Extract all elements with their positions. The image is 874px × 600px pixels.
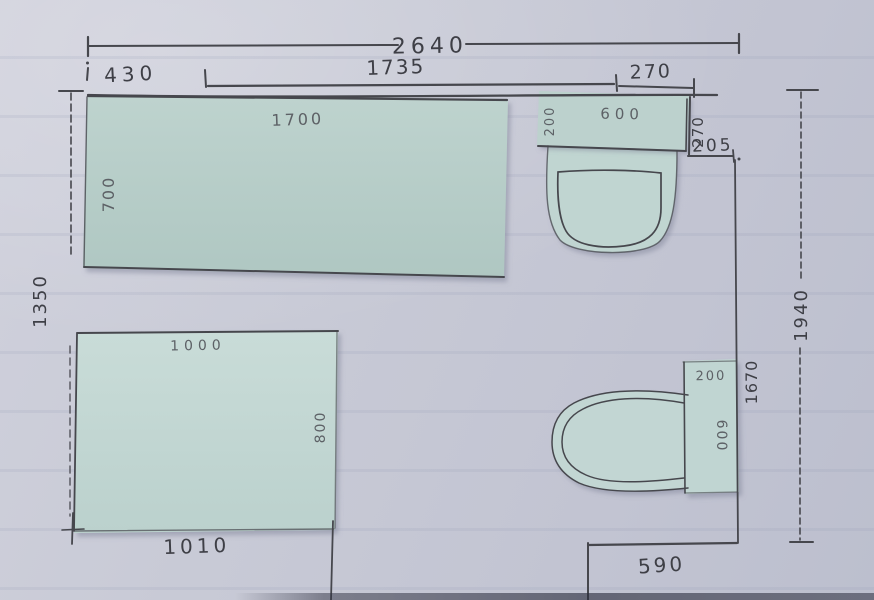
label-bottom-right-width: 590 [637,551,686,578]
label-bath-depth: 700 [99,176,118,213]
shower-cutout [74,330,338,533]
label-right-lower-height: 1670 [742,360,761,405]
dim-1350-bottom-tick-v [72,513,73,544]
dim-590-line [588,543,737,545]
dim-1735-line [208,84,614,86]
dim-1735-left-tick [205,70,206,87]
label-left-height: 1350 [30,274,51,328]
dim-430-dot-tick [86,62,89,65]
label-sink-depth: 200 [543,106,558,137]
label-bottom-left-width: 1010 [163,533,231,559]
dim-1010-right-line [331,521,333,600]
label-wall-recess-width: 205 [692,135,734,156]
sink-counter-right-edge [686,99,687,150]
label-shower-width: 1000 [170,338,226,355]
recess-dot [738,158,741,161]
cutout-shapes [74,91,739,533]
label-sink-width: 600 [600,105,644,124]
dim-2640-line-left [88,45,398,46]
toilet-bowl-cutout [552,391,688,491]
dim-430-left-tick [87,68,88,80]
sink-bowl-cutout [547,145,677,253]
label-seg-mid: 1735 [366,54,426,80]
dim-270-line [619,86,693,88]
cistern-left-edge [684,362,685,493]
dim-1350-bottom-tick-h [62,529,84,530]
label-right-height: 1940 [791,288,812,342]
dim-1735-right-tick [616,75,617,91]
label-seg-right: 270 [629,60,672,83]
floor-plan-photo: 2640 430 1735 270 1350 1940 270 205 1670… [0,0,874,600]
label-shower-depth: 800 [313,411,329,444]
photo-bottom-edge-shadow [235,593,874,600]
dim-2640-line-right [466,43,739,44]
label-bath-width: 1700 [271,109,324,130]
label-toilet-depth: 600 [713,420,729,453]
label-toilet-width: 200 [695,369,726,385]
floor-plan-drawing: 2640 430 1735 270 1350 1940 270 205 1670… [0,0,874,600]
label-seg-left: 430 [103,61,157,88]
